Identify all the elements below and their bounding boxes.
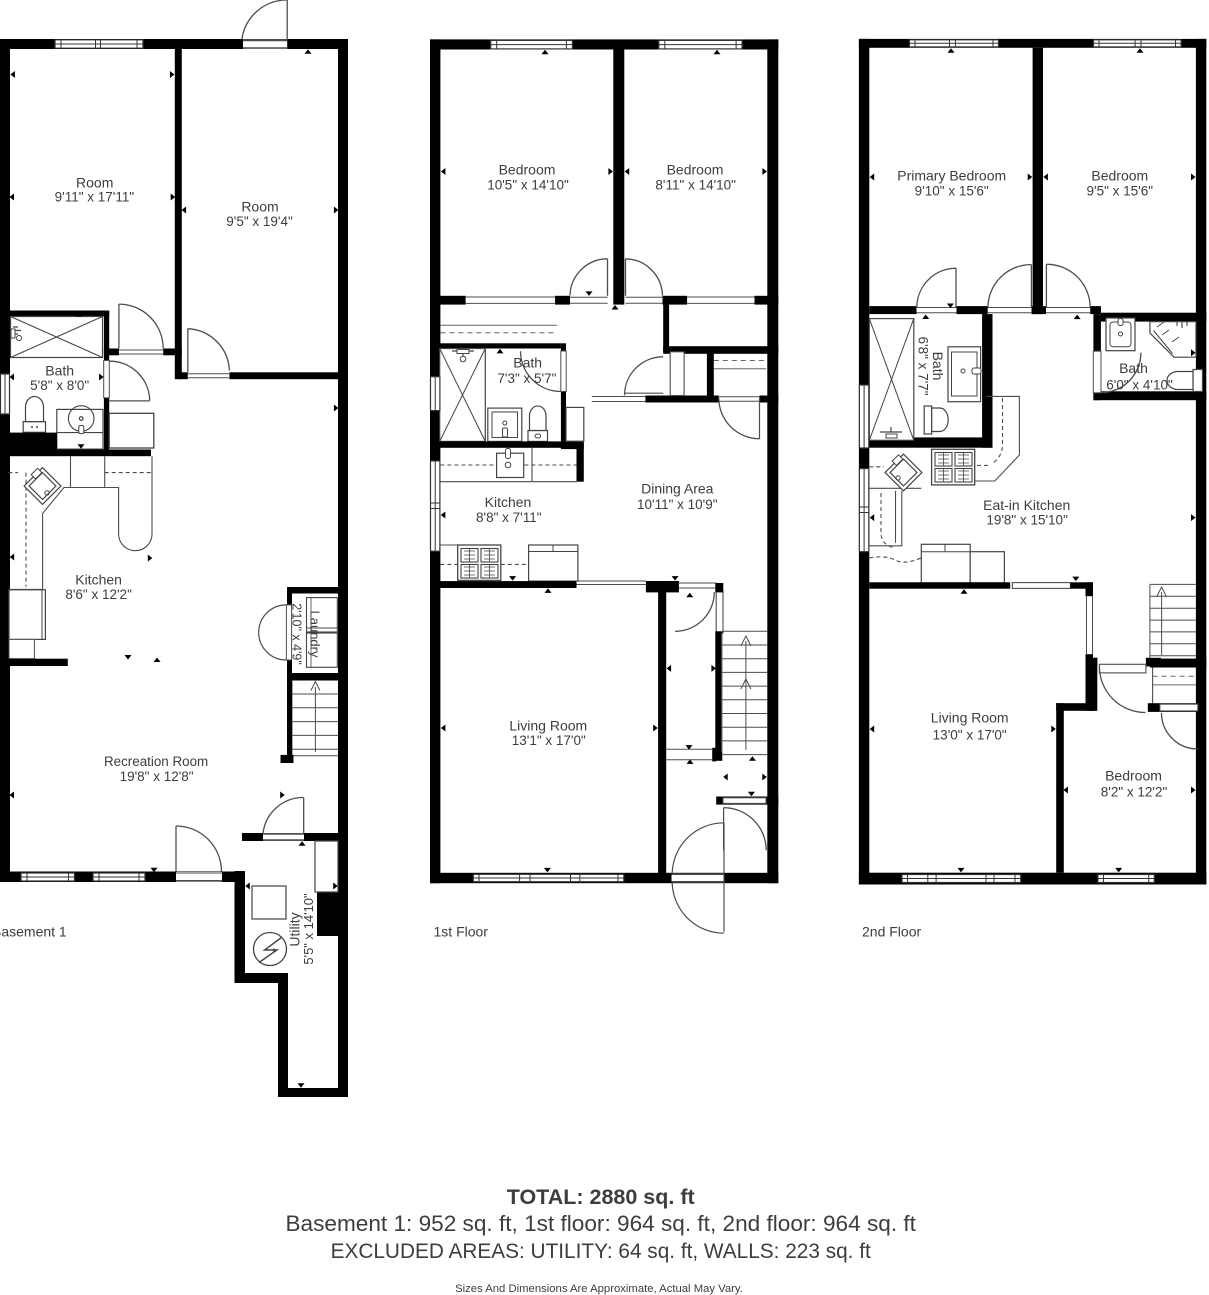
svg-text:8'2" x 12'2": 8'2" x 12'2" (1101, 785, 1168, 800)
svg-text:Bath: Bath (930, 352, 946, 381)
svg-text:Laundry: Laundry (308, 611, 323, 658)
svg-text:Bedroom: Bedroom (1105, 768, 1162, 784)
svg-text:8'6" x 12'2": 8'6" x 12'2" (65, 587, 132, 602)
svg-text:19'8" x 12'8": 19'8" x 12'8" (120, 769, 194, 784)
svg-text:8'11" x 14'10": 8'11" x 14'10" (655, 178, 736, 193)
svg-text:Eat-in Kitchen: Eat-in Kitchen (983, 497, 1070, 513)
svg-text:2'10" x 4'9": 2'10" x 4'9" (290, 603, 304, 665)
svg-text:19'8" x 15'10": 19'8" x 15'10" (986, 513, 1068, 528)
svg-text:6'8" x 7'7": 6'8" x 7'7" (916, 336, 931, 395)
svg-text:Bedroom: Bedroom (1091, 167, 1148, 183)
svg-text:Living Room: Living Room (509, 717, 587, 733)
svg-text:Bedroom: Bedroom (667, 162, 724, 178)
svg-text:5'5" x 14'10": 5'5" x 14'10" (301, 893, 316, 965)
svg-text:EXCLUDED AREAS: UTILITY: 64 sq: EXCLUDED AREAS: UTILITY: 64 sq. ft, WALL… (331, 1240, 871, 1263)
svg-text:9'11" x 17'11": 9'11" x 17'11" (55, 190, 135, 205)
svg-text:9'5" x 15'6": 9'5" x 15'6" (1087, 184, 1154, 199)
svg-text:Sizes And Dimensions Are Appro: Sizes And Dimensions Are Approximate, Ac… (455, 1283, 743, 1295)
svg-text:Room: Room (76, 174, 113, 190)
svg-text:2nd Floor: 2nd Floor (862, 924, 921, 940)
svg-text:8'8" x 7'11": 8'8" x 7'11" (476, 510, 542, 525)
svg-text:Basement 1: Basement 1 (0, 924, 67, 940)
svg-text:10'5" x 14'10": 10'5" x 14'10" (487, 178, 569, 193)
svg-text:5'8" x 8'0": 5'8" x 8'0" (30, 378, 89, 393)
svg-text:Kitchen: Kitchen (75, 571, 122, 587)
svg-text:Primary Bedroom: Primary Bedroom (897, 167, 1006, 183)
svg-text:9'5" x 19'4": 9'5" x 19'4" (226, 214, 293, 229)
svg-text:10'11" x 10'9": 10'11" x 10'9" (637, 497, 718, 512)
svg-text:7'3" x 5'7": 7'3" x 5'7" (497, 371, 556, 386)
svg-text:Kitchen: Kitchen (485, 494, 532, 510)
svg-text:Dining Area: Dining Area (641, 481, 714, 497)
svg-text:TOTAL: 2880 sq. ft: TOTAL: 2880 sq. ft (507, 1185, 695, 1209)
svg-text:Living Room: Living Room (931, 709, 1009, 725)
svg-text:9'10" x 15'6": 9'10" x 15'6" (915, 184, 989, 199)
svg-text:Bath: Bath (1119, 360, 1148, 376)
svg-text:6'0" x 4'10": 6'0" x 4'10" (1106, 377, 1173, 392)
svg-text:Room: Room (241, 199, 278, 215)
svg-text:Bath: Bath (45, 363, 74, 379)
svg-text:Bath: Bath (513, 355, 542, 371)
svg-text:Basement 1: 952 sq. ft, 1st fl: Basement 1: 952 sq. ft, 1st floor: 964 s… (285, 1211, 916, 1236)
svg-text:13'0" x 17'0": 13'0" x 17'0" (933, 727, 1007, 742)
svg-text:Bedroom: Bedroom (499, 162, 556, 178)
svg-text:13'1" x 17'0": 13'1" x 17'0" (512, 733, 586, 748)
svg-text:1st Floor: 1st Floor (434, 924, 489, 940)
svg-text:Recreation Room: Recreation Room (104, 754, 208, 769)
